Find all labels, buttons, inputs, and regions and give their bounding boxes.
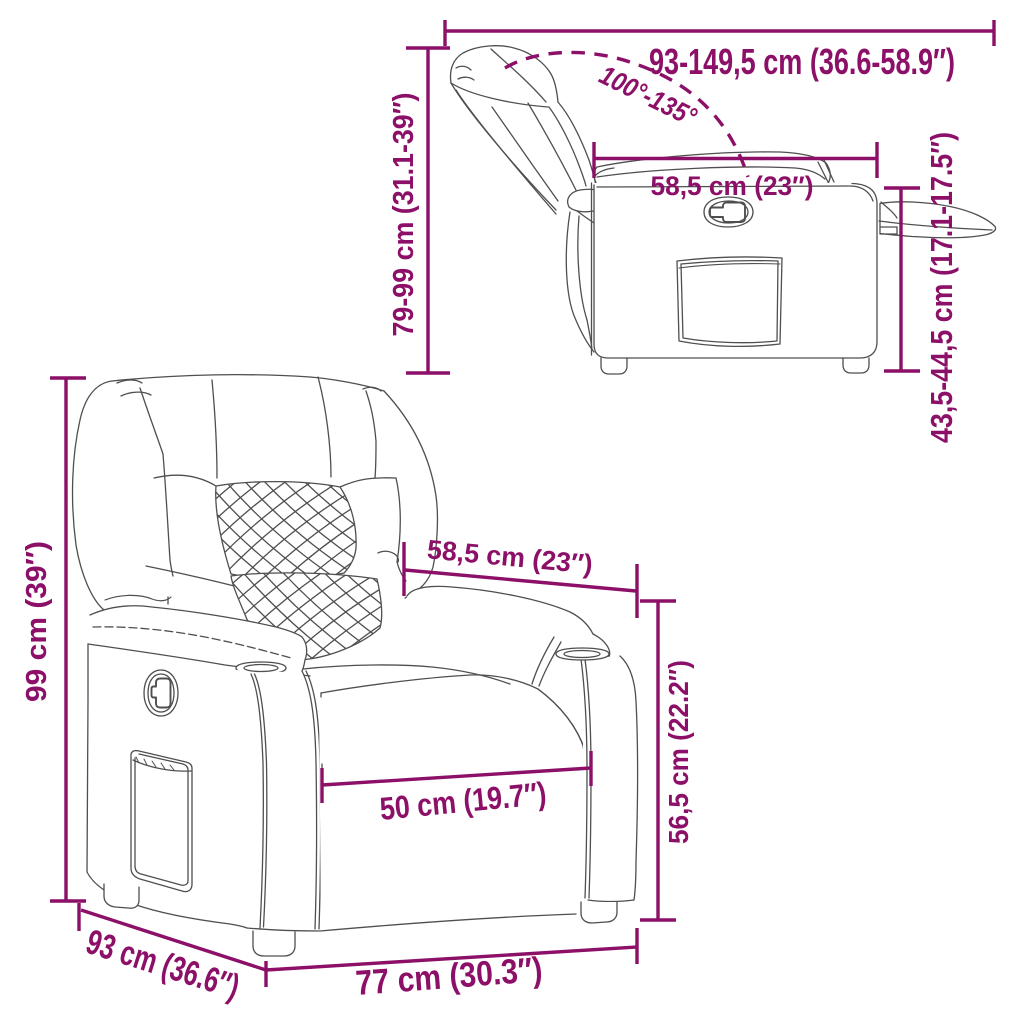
svg-text:79-99 cm (31.1-39″): 79-99 cm (31.1-39″) bbox=[388, 93, 420, 337]
svg-text:99 cm (39″): 99 cm (39″) bbox=[21, 541, 53, 702]
svg-text:93-149,5 cm (36.6-58.9″): 93-149,5 cm (36.6-58.9″) bbox=[649, 41, 955, 82]
svg-text:43,5-44,5 cm (17.1-17.5″): 43,5-44,5 cm (17.1-17.5″) bbox=[924, 132, 959, 443]
svg-text:56,5 cm (22.2″): 56,5 cm (22.2″) bbox=[663, 660, 694, 844]
svg-text:58,5 cm (23″): 58,5 cm (23″) bbox=[651, 171, 814, 201]
svg-text:77 cm (30.3″): 77 cm (30.3″) bbox=[354, 950, 543, 1003]
